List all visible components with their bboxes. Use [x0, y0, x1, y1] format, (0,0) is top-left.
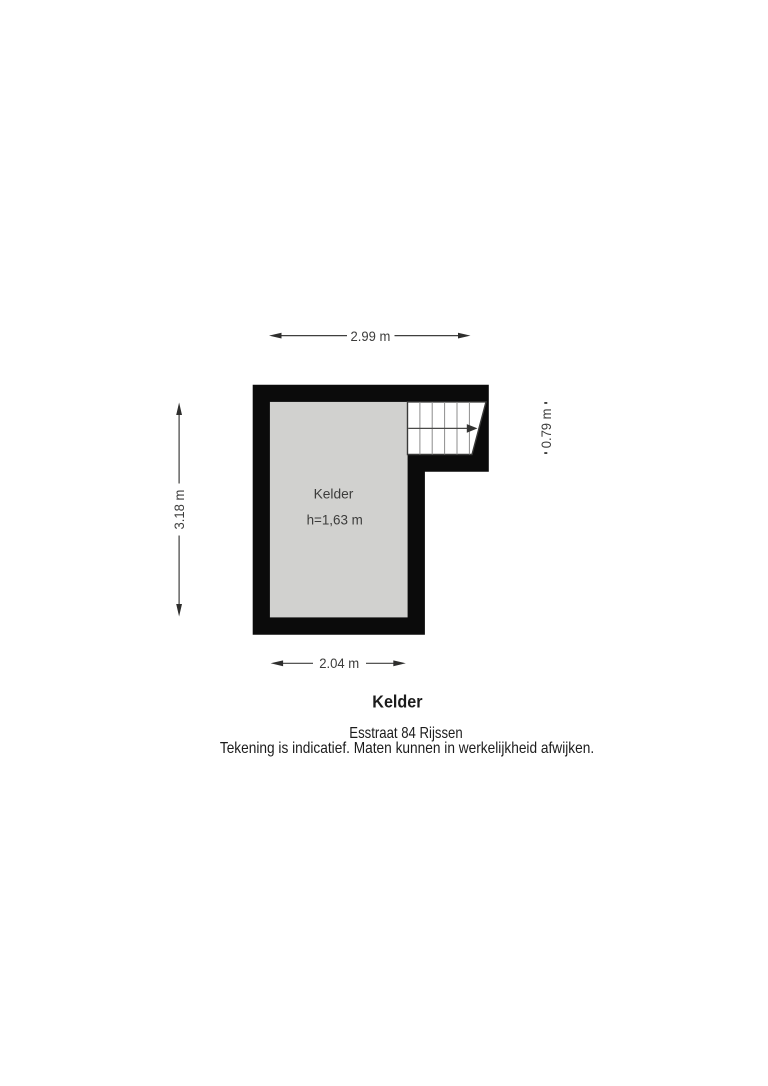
svg-text:3.18 m: 3.18 m	[172, 490, 188, 530]
svg-text:0.79 m: 0.79 m	[539, 409, 555, 449]
svg-text:2.99 m: 2.99 m	[351, 329, 391, 345]
svg-text:h=1,63 m: h=1,63 m	[307, 513, 363, 529]
svg-text:Kelder: Kelder	[314, 486, 354, 502]
svg-text:Kelder: Kelder	[372, 692, 422, 712]
svg-text:Tekening is indicatief. Maten: Tekening is indicatief. Maten kunnen in …	[220, 740, 594, 757]
svg-text:2.04 m: 2.04 m	[319, 656, 359, 672]
